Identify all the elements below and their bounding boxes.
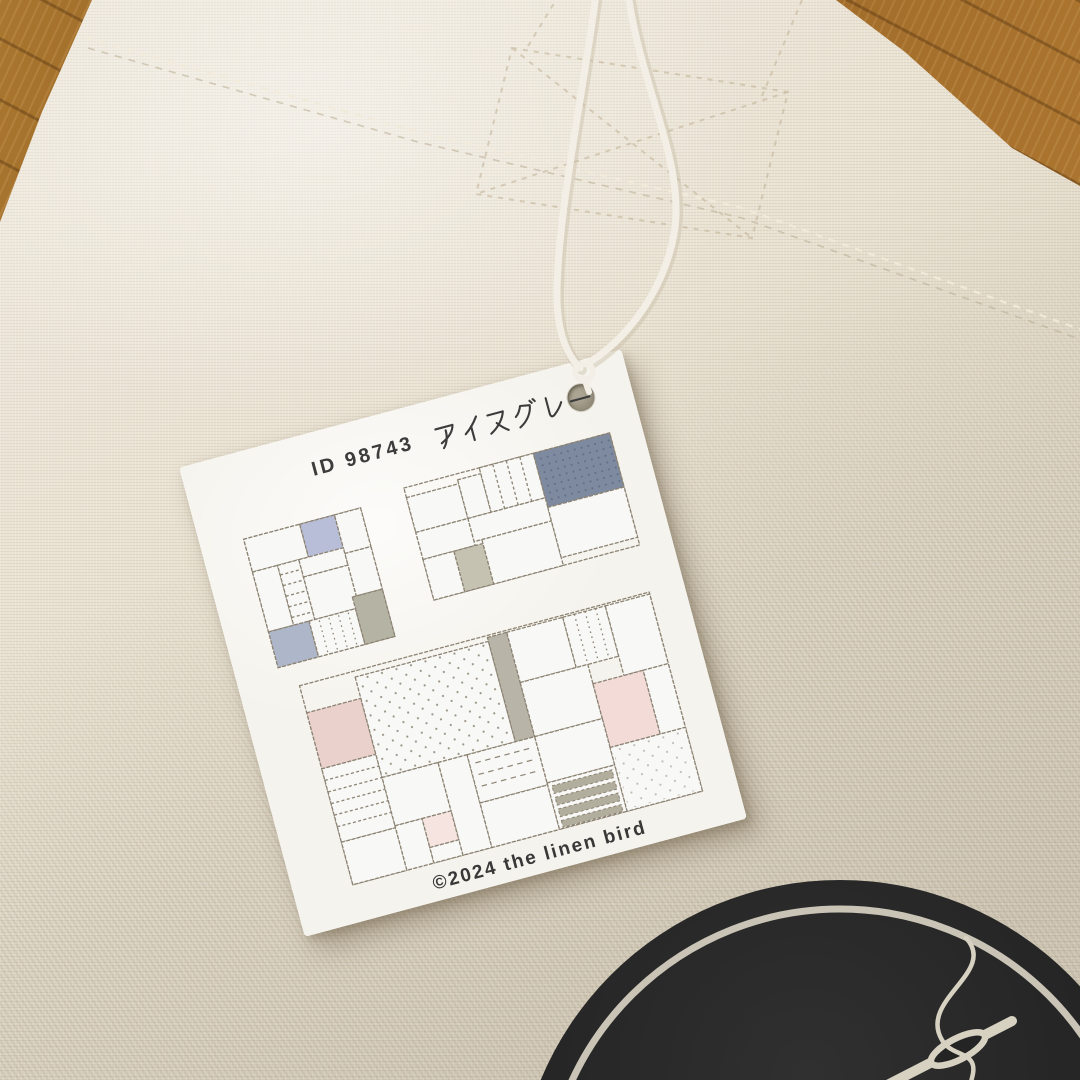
string-right-strand: [590, 0, 676, 362]
tag-string-graphics: [0, 0, 1080, 1080]
product-photo-tote-bag-with-tag: ID 98743 アイスグレー: [0, 0, 1080, 1080]
